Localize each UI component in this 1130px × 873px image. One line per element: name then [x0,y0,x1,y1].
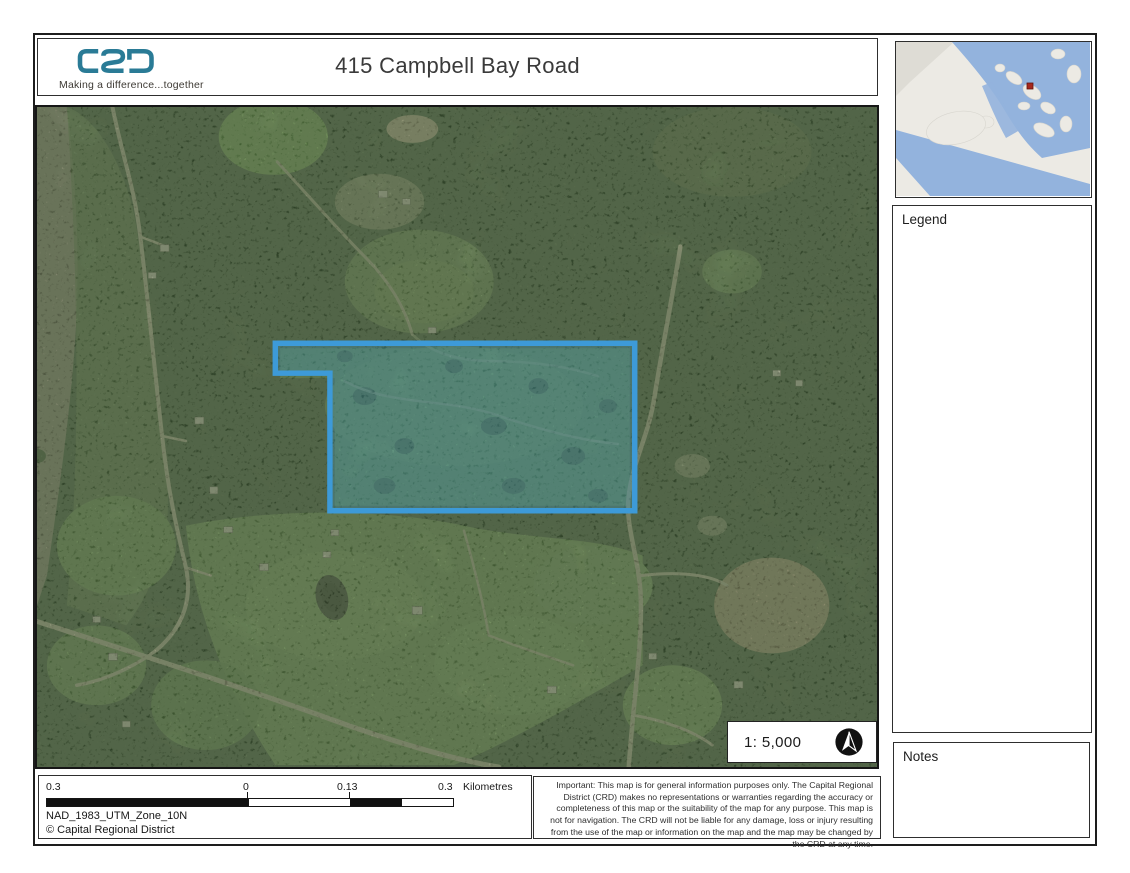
scale-box: 1: 5,000 [727,721,877,763]
logo-text: CRD [174,48,175,49]
map-sheet: CRD Making a difference...together 415 C… [33,33,1097,846]
inset-map-graphic [896,42,1090,196]
scalebar-segment [248,799,351,806]
notes-title: Notes [903,749,1080,764]
disclaimer-text: Important: This map is for general infor… [544,780,873,850]
notes-panel: Notes [893,742,1090,838]
scalebar-segment [401,799,453,806]
legend-panel: Legend [892,205,1092,733]
header: CRD Making a difference...together 415 C… [37,38,878,96]
copyright-label: © Capital Regional District [46,824,175,836]
scalebar-panel: 0.3 0 0.13 0.3 Kilometres NAD_1983_UTM_Z… [38,775,532,839]
scalebar-label-2: 0.13 [337,781,357,793]
projection-label: NAD_1983_UTM_Zone_10N [46,810,187,822]
aerial-imagery [37,107,877,767]
scalebar-label-0: 0.3 [46,781,61,793]
legend-title: Legend [902,212,1082,227]
page-title: 415 Campbell Bay Road [38,53,877,79]
scalebar [46,798,454,807]
inset-map [895,41,1092,198]
logo-tagline: Making a difference...together [59,79,204,91]
scalebar-label-3: 0.3 [438,781,453,793]
scale-text: 1: 5,000 [744,734,801,751]
scalebar-segment [350,799,401,806]
scalebar-unit: Kilometres [463,781,513,793]
inset-location-marker [1027,83,1033,89]
parcel-highlight [275,343,634,510]
scanned-map-page: { "branding": { "logo_text": "CRD", "tag… [0,0,1130,873]
disclaimer-panel: Important: This map is for general infor… [533,776,881,839]
north-arrow-icon [834,727,864,757]
map-viewport: 1: 5,000 [35,105,879,769]
scalebar-segment [47,799,248,806]
